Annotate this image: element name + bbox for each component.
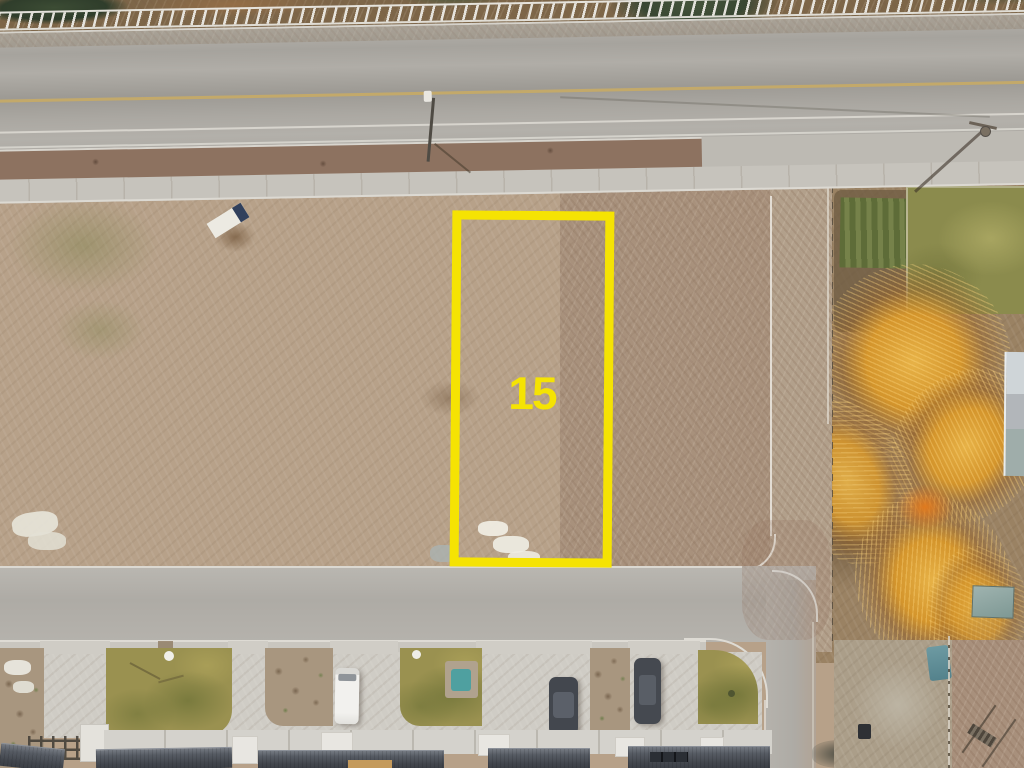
trash-bin (858, 724, 871, 739)
shrub (728, 690, 735, 697)
weed-patch (55, 300, 145, 360)
lot-number-label: 15 (460, 369, 604, 416)
townhouse-roof (96, 747, 232, 768)
highway-group (0, 0, 1024, 210)
xeriscape-strip (590, 648, 630, 736)
skylights (650, 752, 688, 762)
branch-shadow (130, 662, 161, 680)
driveway-apron (228, 641, 268, 654)
townhouse-roof (488, 748, 590, 768)
debris-white (4, 660, 31, 675)
xeriscape-strip (265, 648, 333, 726)
branch-shadow (158, 675, 184, 684)
vacant-lot-ground (0, 160, 790, 580)
driveway-apron (40, 641, 110, 654)
street-light-head (424, 91, 432, 102)
bright-orange-shrub (896, 484, 954, 530)
street-top-curb (0, 566, 742, 568)
dark-sedan (549, 677, 578, 735)
highway-asphalt (0, 11, 1024, 152)
wood-deck (348, 760, 392, 768)
lawn (400, 648, 482, 726)
camper-van (335, 668, 360, 724)
weed-patch (8, 198, 158, 293)
porch-roof-white (232, 736, 258, 764)
shed (971, 585, 1014, 618)
trampoline (164, 651, 174, 661)
debris-white (13, 681, 34, 693)
debris-white (28, 532, 66, 550)
dark-suv (634, 658, 661, 724)
street-horizontal (0, 566, 816, 642)
fence-line (948, 636, 950, 768)
trampoline (412, 650, 421, 659)
suv-sunroof (639, 675, 656, 705)
van-windshield (338, 674, 356, 681)
sedan-roof (553, 692, 574, 718)
driveway-curb-right (827, 184, 829, 424)
center-line-yellow (0, 79, 1024, 102)
aerial-photo: 15 (0, 0, 1024, 768)
lawn (106, 648, 232, 736)
driveway-apron (628, 641, 700, 654)
driveway-curb-left (770, 196, 772, 536)
driveway-apron (330, 641, 398, 654)
kiddie-pool (451, 669, 471, 691)
lot-outline: 15 (450, 210, 615, 567)
driveway-apron (476, 641, 592, 654)
utility-pole (980, 126, 991, 137)
neighbor-roof (1003, 352, 1024, 476)
